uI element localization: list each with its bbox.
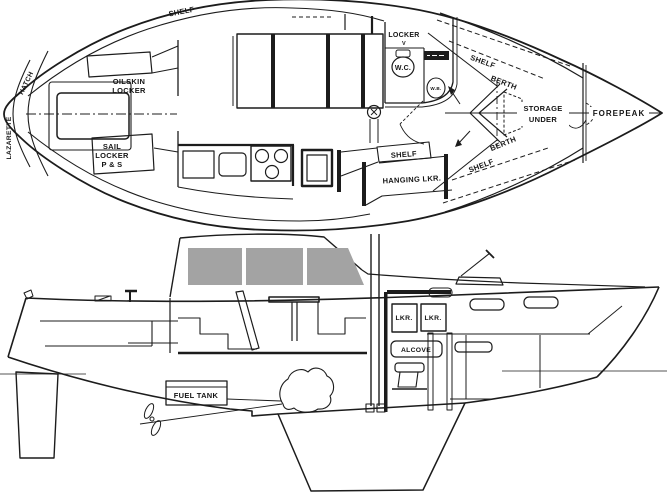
rudder <box>16 372 58 458</box>
toilet-tank <box>396 50 410 57</box>
label-wc: W.C. <box>395 65 411 72</box>
label-locker-v: V <box>402 41 406 47</box>
label-oilskin-locker-2: LOCKER <box>112 86 146 95</box>
bulkhead-bar <box>362 162 366 206</box>
cabin-table-pedestal <box>292 302 297 341</box>
companionway-hatch-inner <box>307 155 327 181</box>
oilskin-locker-lines <box>152 46 178 73</box>
toilet-bowl-profile <box>398 372 418 387</box>
plan-view: LAZARETTE HATCH SHELF OILSKIN LOCKER SAI… <box>4 0 662 231</box>
portlight <box>524 297 558 308</box>
wc-partition-profile <box>447 333 452 410</box>
label-lazarette: LAZARETTE <box>6 116 13 159</box>
label-fuel-tank: FUEL TANK <box>174 391 219 400</box>
profile-view: LKR. LKR. ALCOVE FUEL TANK <box>0 234 667 491</box>
stove-burner <box>275 150 288 163</box>
icebox <box>183 151 214 178</box>
label-storage-1: STORAGE <box>523 104 562 113</box>
wc-divider <box>385 48 424 103</box>
side-deck-bar <box>387 290 451 294</box>
label-sail-locker-3: P & S <box>102 160 123 169</box>
mast-support-lines <box>370 119 378 143</box>
galley-counter-outboard <box>178 187 293 199</box>
waterline <box>0 371 667 374</box>
stove-burner <box>256 150 269 163</box>
shelf-dashed-lower <box>443 148 575 203</box>
settee-divider <box>271 34 275 108</box>
settee-divider <box>361 34 365 108</box>
bow-stem <box>597 287 659 377</box>
berth-cushion <box>455 342 492 352</box>
stem-inner-line <box>588 306 622 334</box>
label-shelf-aft: SHELF <box>390 149 417 160</box>
label-lkr-a: LKR. <box>395 315 412 322</box>
propeller-hub <box>150 417 154 421</box>
cabin-window <box>246 248 303 285</box>
label-storage-2: UNDER <box>529 115 557 124</box>
label-sail-locker-1: SAIL <box>103 142 121 151</box>
wc-door-dashed <box>400 101 423 124</box>
oilskin-locker-box <box>87 52 152 77</box>
hull-inner-fwd-upper <box>440 13 583 78</box>
settee-steps-fwd <box>318 302 366 334</box>
settee-divider <box>326 34 330 108</box>
wc-partition-profile <box>428 333 433 410</box>
sail-locker-line <box>154 148 178 152</box>
label-shelf-port-aft: SHELF <box>168 5 195 19</box>
wc-door-swing-arc <box>400 124 424 144</box>
label-lkr-b: LKR. <box>424 315 441 322</box>
engine-blob <box>280 368 334 412</box>
label-berth-fwd-lower: BERTH <box>489 134 518 153</box>
cockpit-well <box>57 93 129 139</box>
sink <box>219 153 246 176</box>
fore-hatch-lid-tick <box>486 250 494 258</box>
under-berth-lines <box>450 335 540 399</box>
fore-hatch-open-lid <box>461 253 490 276</box>
companionway-ladder <box>236 291 259 350</box>
hull-bottom <box>8 357 278 416</box>
cabin-aft-edge <box>170 238 180 297</box>
label-alcove: ALCOVE <box>401 347 431 354</box>
mast-section-mark <box>371 109 377 115</box>
portlight <box>470 299 504 310</box>
settee-steps-aft <box>178 318 257 349</box>
stove-burner <box>266 166 279 179</box>
foredeck-line <box>362 270 645 287</box>
bulkhead-bar <box>444 154 448 199</box>
label-basin: W.B. <box>430 86 441 91</box>
galley-bulkhead-bar <box>337 150 341 192</box>
keel <box>278 403 465 491</box>
label-berth-fwd-upper: BERTH <box>490 74 519 92</box>
plan-inner-deck-line-upper <box>28 8 384 96</box>
label-hanging-locker: HANGING LKR. <box>382 173 441 185</box>
boat-arrangement-drawing: LAZARETTE HATCH SHELF OILSKIN LOCKER SAI… <box>0 0 667 496</box>
transom <box>8 298 26 357</box>
label-sail-locker-2: LOCKER <box>95 151 129 160</box>
cabin-window <box>188 248 242 285</box>
toilet-seat-profile <box>395 363 424 372</box>
drawing-canvas: LAZARETTE HATCH SHELF OILSKIN LOCKER SAI… <box>0 0 667 496</box>
label-shelf-fwd-lower: SHELF <box>467 157 495 175</box>
label-forepeak: FOREPEAK <box>593 109 645 118</box>
mast <box>371 234 379 406</box>
label-locker: LOCKER <box>388 32 419 39</box>
cockpit-profile-lines <box>40 321 178 346</box>
cabin-window <box>307 248 364 285</box>
main-bulkhead-profile <box>384 292 388 412</box>
profile-sheer-line <box>26 287 659 301</box>
label-oilskin-locker-1: OILSKIN <box>113 77 146 86</box>
